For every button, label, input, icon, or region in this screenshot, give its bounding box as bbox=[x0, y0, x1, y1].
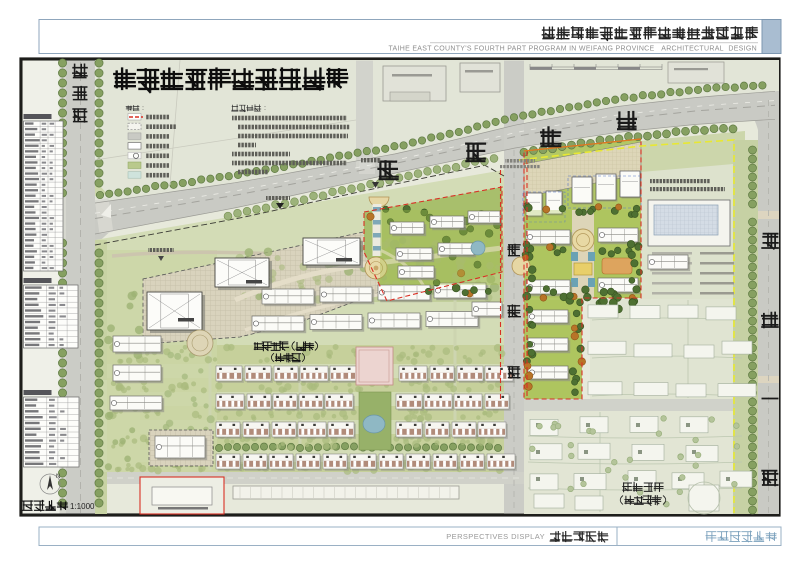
svg-text:N: N bbox=[56, 474, 60, 480]
svg-text:1:1000: 1:1000 bbox=[70, 502, 95, 511]
svg-text:TAIHE EAST COUNTY'S FOURTH PAR: TAIHE EAST COUNTY'S FOURTH PART PROGRAM … bbox=[388, 46, 757, 53]
svg-text:PERSPECTIVES DISPLAY: PERSPECTIVES DISPLAY bbox=[446, 532, 545, 541]
